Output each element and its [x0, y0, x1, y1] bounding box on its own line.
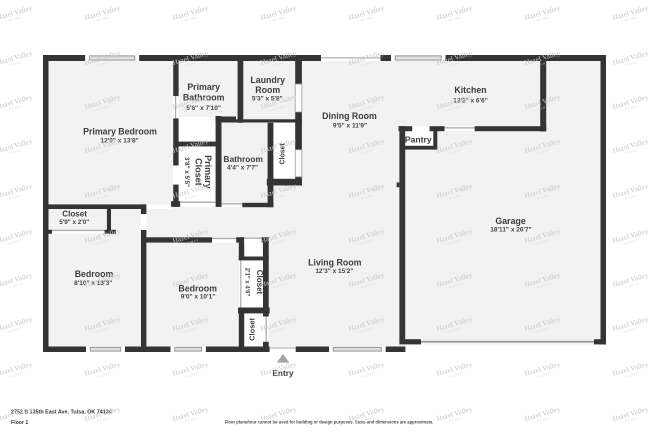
svg-text:Primary: Primary	[187, 82, 220, 92]
svg-text:Garage: Garage	[495, 216, 525, 226]
svg-text:Bathroom: Bathroom	[223, 154, 263, 164]
svg-text:Primary Bedroom: Primary Bedroom	[83, 127, 157, 137]
svg-text:9'0" x 10'1": 9'0" x 10'1"	[181, 294, 216, 301]
svg-text:9'5" x 11'9": 9'5" x 11'9"	[333, 123, 367, 130]
svg-text:12'3" x 15'2": 12'3" x 15'2"	[315, 268, 353, 275]
svg-text:Closet: Closet	[248, 317, 257, 340]
svg-text:5'9" x 2'0": 5'9" x 2'0"	[59, 219, 89, 226]
svg-text:Floor plans/tour cannot be use: Floor plans/tour cannot be used for buil…	[225, 419, 434, 424]
svg-text:2'1" x 4'6": 2'1" x 4'6"	[244, 268, 250, 297]
svg-text:Laundry: Laundry	[250, 75, 285, 85]
svg-text:4'4" x 7'7": 4'4" x 7'7"	[227, 165, 258, 172]
svg-text:3'8" x 5'5": 3'8" x 5'5"	[183, 157, 190, 187]
svg-text:Dining Room: Dining Room	[322, 111, 377, 121]
svg-text:Room: Room	[255, 85, 280, 95]
svg-text:Living Room: Living Room	[308, 258, 361, 268]
svg-text:Closet: Closet	[62, 209, 87, 218]
svg-text:Closet: Closet	[194, 158, 204, 186]
svg-text:Pantry: Pantry	[405, 134, 432, 144]
svg-text:18'11" x 26'7": 18'11" x 26'7"	[490, 226, 531, 233]
